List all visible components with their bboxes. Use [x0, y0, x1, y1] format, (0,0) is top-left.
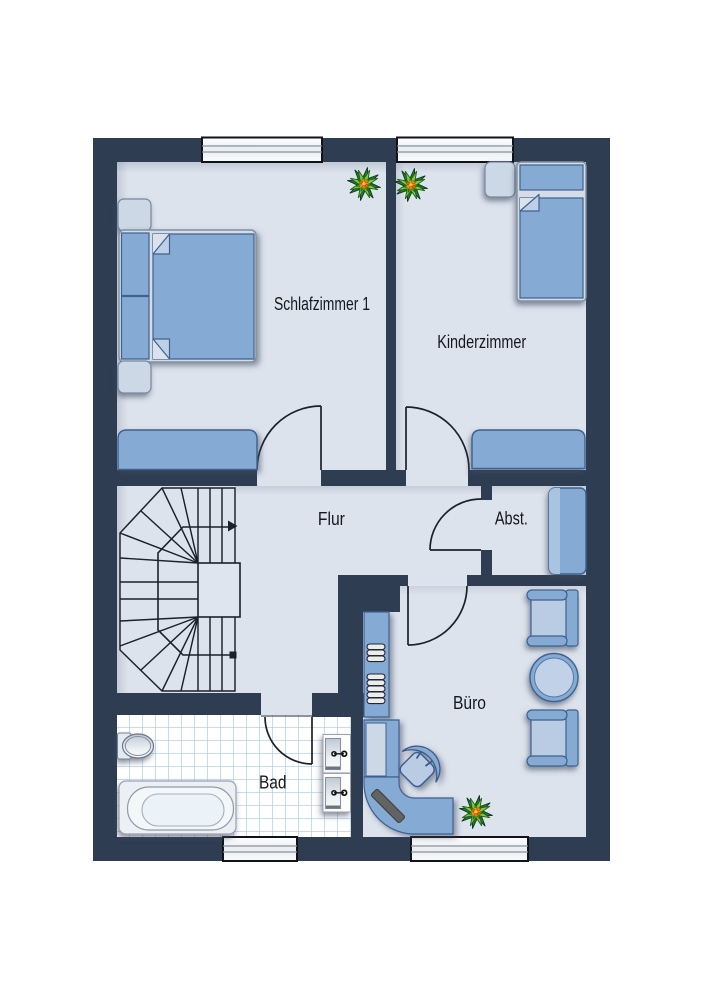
svg-text:Abst.: Abst.: [495, 509, 528, 529]
svg-text:Schlafzimmer 1: Schlafzimmer 1: [274, 294, 370, 314]
svg-text:Flur: Flur: [318, 509, 345, 529]
svg-text:Büro: Büro: [453, 693, 486, 713]
svg-text:Bad: Bad: [259, 773, 287, 793]
svg-text:Kinderzimmer: Kinderzimmer: [437, 332, 526, 352]
